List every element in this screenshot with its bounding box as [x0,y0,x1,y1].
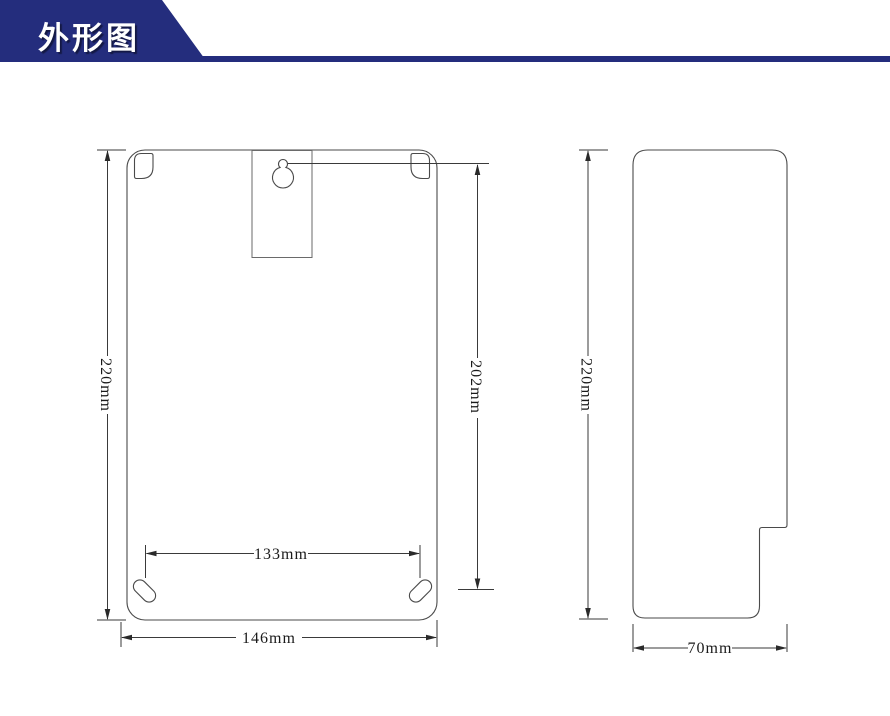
front-keyhole-offset-label: 202mm [467,360,484,414]
arrow-right [426,635,437,641]
arrow-down [585,608,591,619]
arrow-left [121,635,132,641]
arrow-up [585,150,591,161]
front-width-label: 146mm [242,630,296,647]
corner-hole-top-left [135,154,154,179]
arrow-up [105,150,111,161]
side-height-label: 220mm [578,358,595,412]
front-height-dimension: 220mm [97,150,126,620]
front-height-label: 220mm [97,358,114,412]
side-view [633,150,787,618]
arrow-right [776,645,787,651]
side-depth-label: 70mm [688,640,733,657]
outline-drawing-page: 外形图 220mm [0,0,890,716]
mount-slot-bottom-right [407,577,435,605]
arrow-down [105,609,111,620]
side-depth-dimension: 70mm [633,624,787,657]
front-hole-spacing-label: 133mm [254,546,308,563]
arrow-right [409,551,420,557]
side-body-outline [633,150,787,618]
front-keyhole-offset-dimension: 202mm [288,164,494,590]
arrow-left [146,551,157,557]
outline-drawing-canvas: 220mm 202mm 133mm 146mm [0,0,890,716]
arrow-up [475,164,481,175]
arrow-down [475,579,481,590]
side-height-dimension: 220mm [578,150,609,619]
front-width-dimension: 146mm [121,620,437,647]
corner-hole-top-right [411,154,430,179]
arrow-left [633,645,644,651]
front-hole-spacing-dimension: 133mm [146,545,421,578]
mount-slot-bottom-left [131,577,159,605]
hanging-tab [252,151,312,258]
